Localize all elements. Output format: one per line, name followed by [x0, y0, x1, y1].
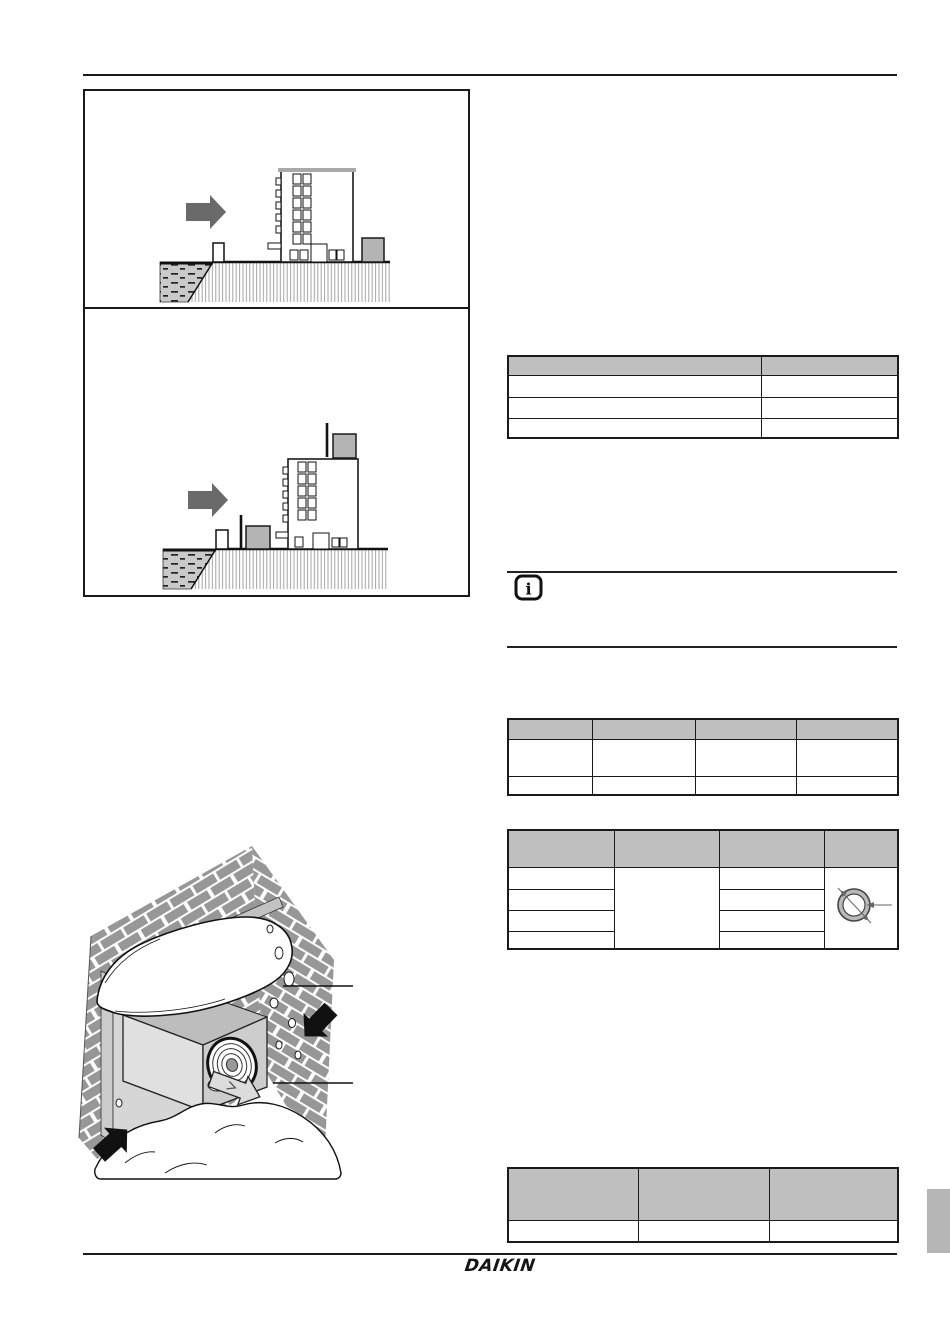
table-cell [695, 739, 796, 776]
table-cell [638, 1168, 769, 1220]
wind-arrow-icon [188, 483, 228, 517]
building [268, 170, 356, 262]
table-cell [508, 889, 614, 910]
table-cell [796, 776, 898, 795]
table-cell [761, 356, 898, 375]
ground-hatch [191, 549, 388, 589]
table-cell [719, 910, 824, 931]
table-cell [508, 931, 614, 949]
wind-arrow-icon [186, 195, 226, 229]
table-cell [719, 867, 824, 889]
building [276, 459, 358, 549]
rooftop-unit [327, 423, 356, 458]
figure-box [83, 89, 470, 597]
table-cell [761, 375, 898, 397]
header-rule [83, 74, 897, 76]
table-cell [592, 776, 695, 795]
table-cell [719, 931, 824, 949]
table-cell [508, 418, 761, 438]
sea-wind-building-diagram-2 [85, 307, 468, 595]
table-cell [796, 719, 898, 739]
table-cell [761, 397, 898, 418]
table-cell [769, 1168, 898, 1220]
table-cell [719, 830, 824, 867]
svg-text:i: i [525, 580, 531, 599]
table-cell [695, 776, 796, 795]
table-cell [592, 719, 695, 739]
sea-wind-building-diagram-1 [85, 91, 468, 307]
table-cell [508, 1220, 638, 1242]
footer-rule [83, 1253, 897, 1255]
table-cell [796, 739, 898, 776]
table-cell [761, 418, 898, 438]
table-cell [508, 910, 614, 931]
table-cell [508, 830, 614, 867]
manual-page: i [0, 0, 950, 1343]
table-2 [507, 718, 899, 796]
table-cell [508, 375, 761, 397]
table-cell [719, 889, 824, 910]
page-edge-tab [927, 1189, 950, 1253]
seawall [213, 243, 224, 262]
table-1 [507, 355, 899, 439]
table-cell [769, 1220, 898, 1242]
small-building [362, 238, 384, 262]
table-cell [592, 739, 695, 776]
table-cell [508, 356, 761, 375]
daikin-logo: DAIKIN [451, 1256, 550, 1276]
snow-covered-wall-mounted-unit-diagram [65, 833, 360, 1180]
table-3 [507, 829, 899, 950]
ground-hatch [188, 262, 390, 302]
table-cell [614, 830, 719, 867]
table-cell [508, 867, 614, 889]
table-cell [614, 867, 719, 949]
table-cell [824, 830, 898, 867]
table-cell [508, 739, 592, 776]
balcony-notches [268, 178, 281, 249]
table-cell [508, 719, 592, 739]
table-cell [508, 1168, 638, 1220]
table-cell [638, 1220, 769, 1242]
table-4 [507, 1167, 899, 1243]
table-cell [695, 719, 796, 739]
pipe-cross-section-icon [826, 877, 896, 933]
table-cell [508, 397, 761, 418]
note-bottom-rule [507, 646, 897, 648]
table-cell [824, 867, 898, 949]
table-cell [508, 776, 592, 795]
note-top-rule [507, 571, 897, 573]
balcony-notches [276, 467, 288, 538]
ground-unit [241, 515, 270, 549]
seawall [216, 530, 228, 549]
info-icon: i [514, 574, 543, 601]
